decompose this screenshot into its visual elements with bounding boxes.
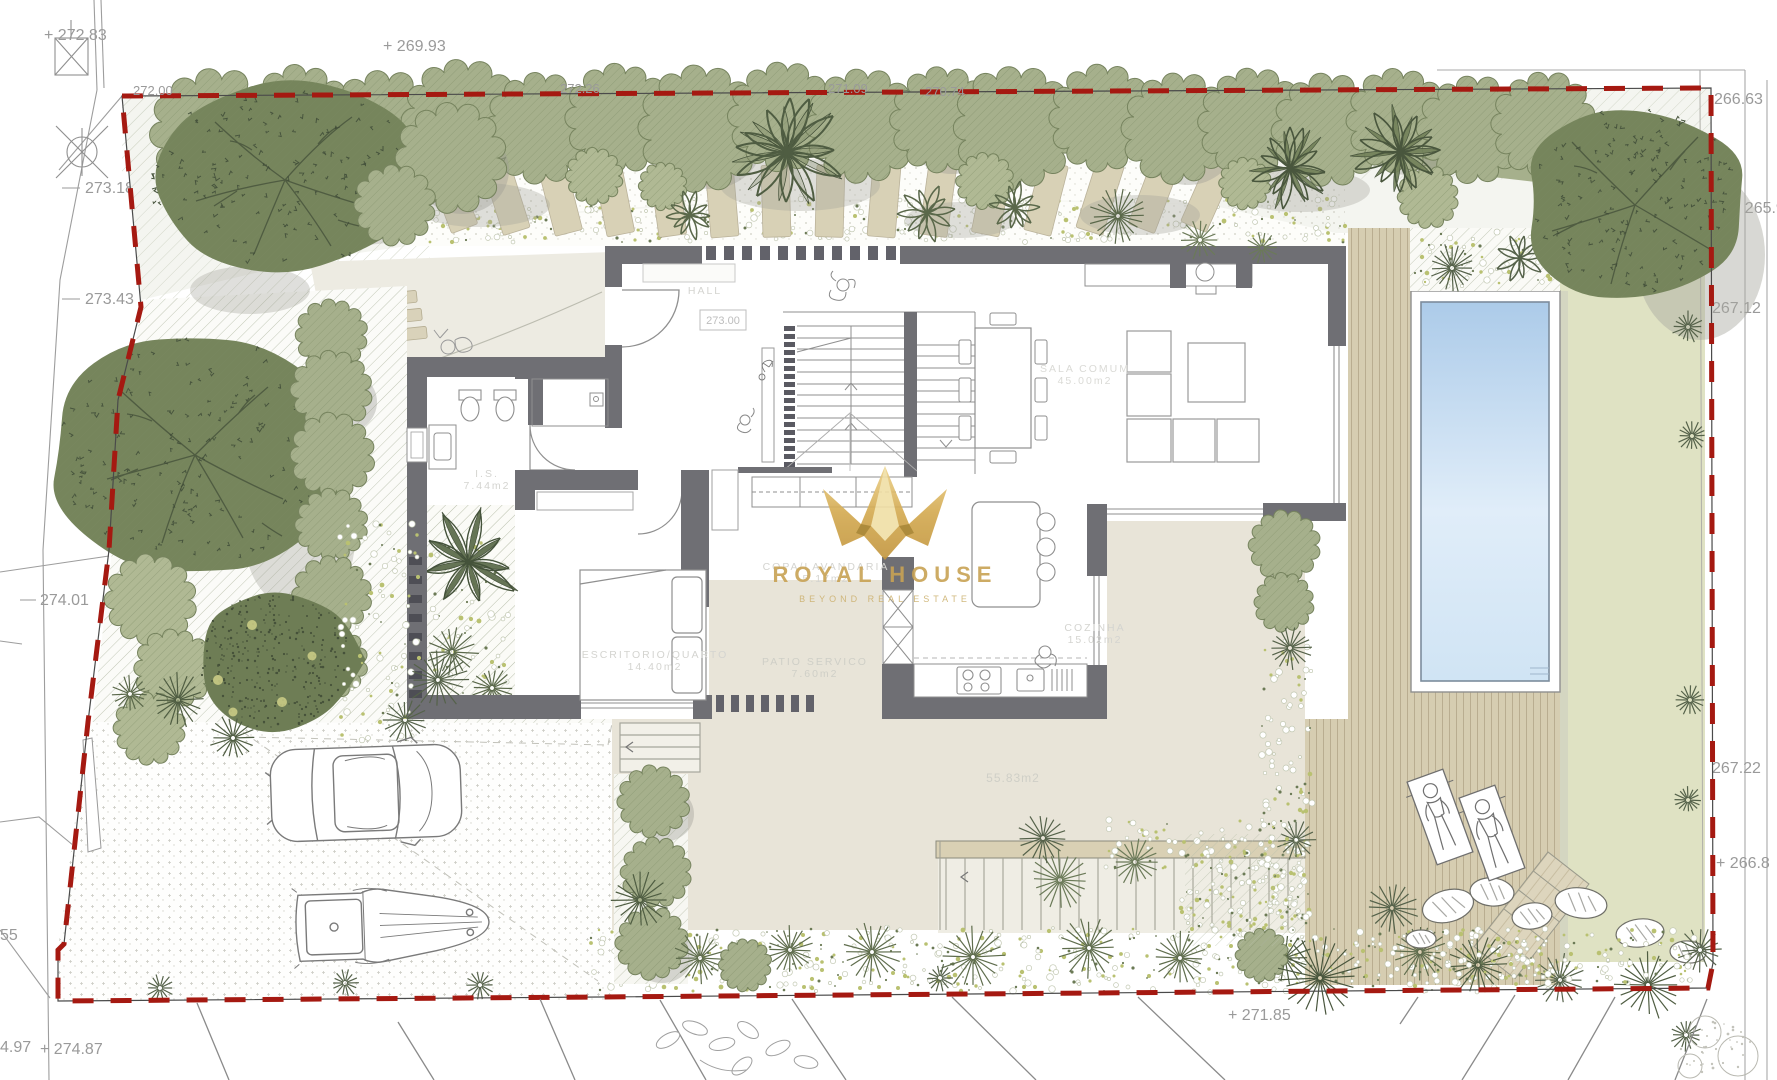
svg-text:ESCRITORIO/QUARTO: ESCRITORIO/QUARTO xyxy=(582,649,729,661)
svg-text:270.74: 270.74 xyxy=(925,84,965,99)
svg-text:SALA COMUM: SALA COMUM xyxy=(1040,363,1130,375)
svg-text:COZINHA: COZINHA xyxy=(1064,622,1125,634)
svg-text:272.26: 272.26 xyxy=(560,81,600,96)
svg-text:HALL: HALL xyxy=(688,285,722,297)
svg-text:14.40m2: 14.40m2 xyxy=(628,661,683,673)
svg-text:267.22: 267.22 xyxy=(1712,760,1761,777)
svg-text:273.00: 273.00 xyxy=(706,315,740,327)
svg-text:+ 274.87: + 274.87 xyxy=(40,1041,103,1058)
svg-text:55: 55 xyxy=(0,927,18,944)
svg-text:266.63: 266.63 xyxy=(1714,91,1763,108)
svg-text:PATIO SERVICO: PATIO SERVICO xyxy=(762,656,868,668)
svg-text:4.97: 4.97 xyxy=(0,1039,31,1056)
svg-text:45.00m2: 45.00m2 xyxy=(1058,375,1113,387)
svg-text:I.S.: I.S. xyxy=(475,468,499,480)
svg-text:7.60m2: 7.60m2 xyxy=(791,668,838,680)
svg-text:272.00: 272.00 xyxy=(133,83,173,98)
svg-text:+ 269.93: + 269.93 xyxy=(383,38,446,55)
svg-text:273.18: 273.18 xyxy=(85,180,134,197)
svg-text:7.44m2: 7.44m2 xyxy=(463,480,510,492)
svg-text:ROYAL HOUSE: ROYAL HOUSE xyxy=(773,562,998,587)
svg-text:BEYOND REAL ESTATE: BEYOND REAL ESTATE xyxy=(799,594,971,604)
svg-text:+ 272.83: + 272.83 xyxy=(44,27,107,44)
svg-text:273.43: 273.43 xyxy=(85,291,134,308)
svg-text:274.01: 274.01 xyxy=(40,592,89,609)
svg-text:271.09: 271.09 xyxy=(828,81,868,96)
svg-text:+ 266.8: + 266.8 xyxy=(1716,855,1770,872)
svg-text:55.83m2: 55.83m2 xyxy=(986,771,1040,785)
svg-text:15.02m2: 15.02m2 xyxy=(1068,634,1123,646)
svg-text:+ 271.85: + 271.85 xyxy=(1228,1007,1291,1024)
